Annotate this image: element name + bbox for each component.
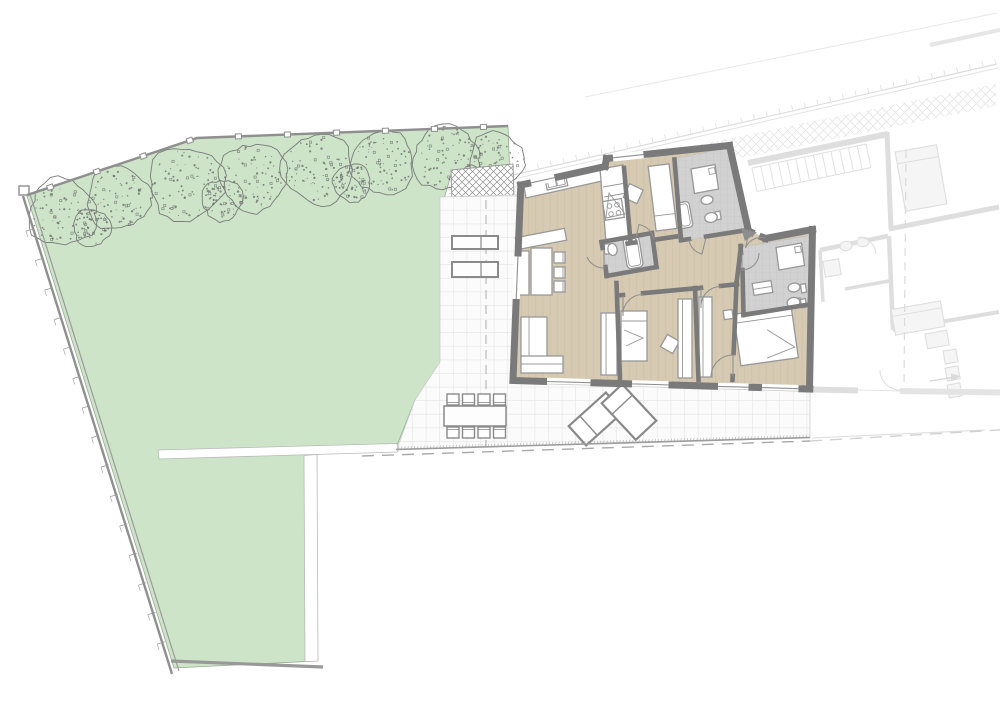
tree-speckle	[428, 169, 430, 171]
tree-speckle	[265, 173, 266, 174]
tree-speckle	[396, 141, 398, 143]
tree-speckle	[168, 173, 170, 175]
tree-speckle	[499, 154, 501, 156]
tree-speckle	[106, 221, 108, 223]
tree-speckle	[116, 178, 117, 179]
tree-speckle	[439, 180, 441, 182]
tree-speckle	[192, 191, 194, 193]
tree-speckle	[207, 190, 209, 192]
tree-speckle	[59, 209, 60, 210]
tree-speckle	[351, 188, 353, 190]
tree-speckle	[468, 138, 470, 140]
tree-speckle	[204, 206, 206, 208]
living-wardrobe	[601, 313, 617, 375]
tree-speckle	[100, 178, 101, 179]
tree-speckle	[392, 151, 394, 153]
planter-bench-2	[452, 262, 498, 277]
tree-speckle	[227, 166, 228, 167]
tree-speckle	[269, 161, 271, 163]
tree-speckle	[105, 229, 107, 231]
tree-speckle	[173, 180, 175, 182]
tree-speckle	[211, 210, 212, 211]
tree-speckle	[224, 176, 226, 178]
tree-speckle	[496, 149, 497, 150]
tree-speckle	[98, 204, 99, 205]
tree-speckle	[81, 213, 83, 215]
tree-speckle	[94, 194, 96, 196]
tree-speckle	[68, 216, 69, 217]
tree-speckle	[429, 148, 431, 150]
tree-speckle	[452, 145, 453, 146]
tree-speckle	[50, 209, 52, 211]
tree-speckle	[178, 215, 179, 216]
tree-speckle	[366, 164, 367, 165]
tree-speckle	[290, 151, 291, 152]
tree-speckle	[273, 165, 274, 166]
tree-speckle	[235, 205, 237, 207]
tree-speckle	[457, 160, 458, 161]
tree-speckle	[115, 193, 117, 195]
tree-speckle	[228, 167, 230, 169]
tree-speckle	[170, 168, 171, 169]
outdoor-chair	[478, 394, 490, 405]
fence-post	[431, 126, 437, 131]
tree-speckle	[221, 211, 223, 213]
tree-speckle	[468, 142, 470, 144]
tree-speckle	[263, 197, 265, 199]
tree-speckle	[81, 227, 83, 229]
tree-speckle	[263, 184, 265, 186]
tree-speckle	[320, 139, 322, 141]
tree-speckle	[176, 179, 178, 181]
outdoor-chair	[494, 394, 506, 405]
tree-speckle	[494, 162, 496, 164]
tree-speckle	[395, 160, 396, 161]
tree-speckle	[93, 232, 94, 233]
tree-speckle	[83, 217, 85, 219]
tree-speckle	[210, 197, 212, 199]
tree-speckle	[479, 152, 481, 154]
tree-speckle	[365, 156, 367, 158]
tree-speckle	[241, 162, 243, 164]
tree-speckle	[333, 167, 335, 169]
tree-speckle	[342, 177, 344, 179]
tree-speckle	[224, 211, 226, 213]
tree-speckle	[221, 204, 223, 206]
tree-speckle	[183, 152, 184, 153]
tree-speckle	[353, 196, 355, 198]
tree-speckle	[86, 213, 88, 215]
tree-speckle	[323, 162, 325, 164]
tree-speckle	[408, 151, 410, 153]
tree-speckle	[425, 171, 426, 172]
tree-speckle	[428, 135, 430, 137]
tree-speckle	[172, 176, 174, 178]
tree-speckle	[103, 199, 104, 200]
tree-speckle	[488, 140, 489, 141]
tree-speckle	[441, 150, 443, 152]
tree-speckle	[95, 243, 96, 244]
floor-plan-page	[0, 0, 1000, 707]
tree-speckle	[199, 210, 200, 211]
tree-speckle	[109, 190, 111, 192]
bed-single-1	[621, 311, 647, 361]
tree-speckle	[510, 152, 511, 153]
tree-speckle	[303, 169, 305, 171]
tree-speckle	[348, 171, 349, 172]
tree-speckle	[357, 172, 359, 174]
tree-speckle	[238, 187, 239, 188]
tree-speckle	[265, 156, 267, 158]
tree-speckle	[87, 227, 89, 229]
tree-speckle	[240, 195, 242, 197]
tree-speckle	[226, 203, 228, 205]
tree-speckle	[341, 172, 342, 173]
tree-speckle	[169, 195, 171, 197]
tree-speckle	[111, 216, 113, 218]
tree-speckle	[52, 220, 53, 221]
fence-post	[333, 130, 339, 135]
tree-speckle	[498, 152, 500, 154]
tree-speckle	[337, 177, 338, 178]
tree-speckle	[71, 203, 72, 204]
tree-speckle	[56, 238, 57, 239]
tree-speckle	[229, 195, 230, 196]
tree-speckle	[379, 171, 381, 173]
tree-speckle	[300, 142, 302, 144]
tree-speckle	[468, 158, 469, 159]
tree-speckle	[34, 225, 35, 226]
tree-speckle	[346, 189, 347, 190]
tree-speckle	[131, 175, 133, 177]
tree-speckle	[518, 152, 519, 153]
tree-speckle	[473, 151, 474, 152]
tree-speckle	[361, 168, 363, 170]
tree-speckle	[328, 187, 330, 189]
tree-speckle	[357, 166, 359, 168]
dining-table-indoor	[531, 248, 552, 295]
tree-speckle	[354, 185, 355, 186]
tree-speckle	[203, 183, 205, 185]
tree-speckle	[95, 212, 96, 213]
tree-speckle	[131, 187, 133, 189]
tree-speckle	[253, 196, 255, 198]
tree-speckle	[440, 172, 442, 174]
tree-speckle	[451, 133, 452, 134]
tree-speckle	[302, 180, 304, 182]
tree-speckle	[64, 197, 65, 198]
tree-speckle	[323, 175, 324, 176]
tree-speckle	[238, 159, 239, 160]
tree-speckle	[404, 177, 406, 179]
tree-speckle	[78, 237, 80, 239]
tree-speckle	[356, 186, 358, 188]
tree-speckle	[110, 210, 112, 212]
tree-speckle	[295, 180, 296, 181]
tree-speckle	[151, 183, 153, 185]
tree-speckle	[482, 144, 483, 145]
tree-speckle	[372, 181, 374, 183]
tree-speckle	[122, 204, 124, 206]
tree-speckle	[336, 158, 338, 160]
tree-speckle	[423, 176, 425, 178]
tree-speckle	[191, 150, 192, 151]
tree-speckle	[58, 227, 59, 228]
outdoor-chair	[447, 427, 459, 438]
tree-speckle	[101, 176, 103, 178]
tree-speckle	[230, 203, 231, 204]
tree-speckle	[103, 205, 105, 207]
tree-speckle	[368, 152, 369, 153]
tree-speckle	[363, 185, 364, 186]
tree-speckle	[107, 204, 109, 206]
tree-speckle	[181, 194, 183, 196]
tree-speckle	[261, 205, 262, 206]
tree-speckle	[368, 149, 369, 150]
tree-speckle	[383, 170, 385, 172]
tree-speckle	[386, 172, 388, 174]
tree-speckle	[271, 175, 273, 177]
tree-speckle	[368, 182, 369, 183]
tree-speckle	[256, 172, 258, 174]
tree-speckle	[122, 210, 124, 212]
tree-speckle	[500, 145, 501, 146]
tree-speckle	[87, 232, 89, 234]
tree-speckle	[493, 163, 494, 164]
tree-speckle	[130, 203, 131, 204]
tree-speckle	[181, 155, 183, 157]
tree-speckle	[178, 191, 180, 193]
tree-speckle	[42, 207, 44, 209]
tree-speckle	[338, 180, 340, 182]
tree-speckle	[493, 143, 494, 144]
tree-speckle	[57, 222, 59, 224]
tree-speckle	[165, 170, 167, 172]
tree-speckle	[159, 163, 160, 164]
tree-speckle	[442, 162, 444, 164]
tree-speckle	[271, 156, 272, 157]
tree-speckle	[426, 158, 428, 160]
tree-speckle	[346, 174, 348, 176]
tree-speckle	[383, 138, 385, 140]
tree-speckle	[345, 158, 347, 160]
fence-post	[235, 134, 241, 139]
tree-speckle	[227, 212, 229, 214]
tree-speckle	[459, 139, 461, 141]
tree-speckle	[342, 183, 343, 184]
tree-speckle	[126, 182, 128, 184]
tree-speckle	[78, 209, 79, 210]
tree-speckle	[107, 171, 109, 173]
tree-speckle	[206, 188, 208, 190]
tree-speckle	[474, 161, 475, 162]
tree-speckle	[106, 219, 107, 220]
tree-speckle	[389, 169, 390, 170]
tree-speckle	[162, 198, 164, 200]
tree-speckle	[184, 197, 186, 199]
tree-speckle	[484, 151, 486, 153]
tree-speckle	[100, 233, 102, 235]
tree-speckle	[221, 216, 223, 218]
tree-speckle	[348, 176, 349, 177]
tree-speckle	[470, 150, 472, 152]
tree-speckle	[471, 152, 472, 153]
tree-speckle	[258, 198, 259, 199]
tree-speckle	[383, 163, 384, 164]
fence-post	[284, 132, 290, 137]
tree-speckle	[280, 182, 282, 184]
tree-speckle	[256, 201, 258, 203]
tree-speckle	[295, 169, 296, 170]
dining-chairs-indoor	[554, 252, 565, 292]
tree-speckle	[365, 189, 366, 190]
tree-speckle	[257, 196, 259, 198]
tree-speckle	[122, 216, 123, 217]
tree-speckle	[405, 179, 407, 181]
tree-speckle	[104, 217, 105, 218]
tree-speckle	[291, 176, 293, 178]
tree-speckle	[229, 200, 230, 201]
tree-speckle	[433, 167, 435, 169]
tree-speckle	[362, 187, 364, 189]
tree-speckle	[212, 171, 214, 173]
tree-speckle	[256, 168, 257, 169]
tree-speckle	[129, 221, 131, 223]
tree-speckle	[59, 204, 60, 205]
tree-speckle	[316, 143, 318, 145]
tree-speckle	[371, 147, 372, 148]
tree-speckle	[182, 190, 184, 192]
tree-speckle	[205, 194, 206, 195]
tree-speckle	[454, 160, 455, 161]
tree-speckle	[212, 203, 214, 205]
tree-speckle	[245, 189, 246, 190]
tree-speckle	[455, 162, 457, 164]
tree-speckle	[424, 166, 426, 168]
tree-speckle	[104, 219, 105, 220]
tree-speckle	[117, 171, 119, 173]
tree-speckle	[255, 159, 256, 160]
tree-speckle	[42, 219, 43, 220]
outdoor-chair	[478, 427, 490, 438]
tree-speckle	[43, 192, 45, 194]
tree-speckle	[261, 203, 263, 205]
tree-speckle	[360, 166, 362, 168]
tree-speckle	[392, 189, 394, 191]
tree-speckle	[364, 180, 365, 181]
tree-speckle	[345, 183, 346, 184]
tree-speckle	[233, 214, 234, 215]
tree-speckle	[77, 210, 78, 211]
tree-speckle	[208, 173, 209, 174]
tree-speckle	[380, 166, 382, 168]
tree-speckle	[37, 199, 38, 200]
tree-speckle	[127, 195, 129, 197]
tree-speckle	[304, 180, 305, 181]
tree-speckle	[253, 159, 254, 160]
tree-speckle	[275, 177, 277, 179]
tree-speckle	[188, 156, 190, 158]
tree-speckle	[397, 148, 399, 150]
tree-speckle	[401, 179, 403, 181]
outdoor-dining-table	[444, 406, 506, 426]
tree-speckle	[496, 161, 498, 163]
tree-speckle	[313, 177, 315, 179]
tree-speckle	[89, 237, 91, 239]
tree-speckle	[122, 217, 124, 219]
tree-speckle	[443, 143, 445, 145]
tree-speckle	[90, 219, 92, 221]
tree-speckle	[89, 233, 91, 235]
tree-speckle	[333, 180, 335, 182]
tree-speckle	[195, 167, 197, 169]
tree-speckle	[356, 196, 358, 198]
tree-speckle	[453, 133, 455, 135]
tree-speckle	[421, 152, 422, 153]
tree-speckle	[485, 136, 487, 138]
tree-speckle	[269, 198, 271, 200]
tree-speckle	[481, 139, 483, 141]
tree-speckle	[120, 183, 121, 184]
tree-speckle	[373, 142, 375, 144]
tree-speckle	[271, 187, 273, 189]
tree-speckle	[180, 185, 182, 187]
tree-speckle	[253, 157, 255, 159]
tree-speckle	[340, 174, 342, 176]
tree-speckle	[286, 173, 287, 174]
tree-speckle	[427, 146, 428, 147]
tree-speckle	[40, 207, 42, 209]
outdoor-chair	[494, 427, 506, 438]
tree-speckle	[317, 191, 318, 192]
tree-speckle	[177, 151, 178, 152]
tree-speckle	[225, 170, 226, 171]
tree-speckle	[427, 140, 428, 141]
outdoor-chair	[463, 427, 475, 438]
garden-path-vertical	[304, 455, 318, 662]
tree-speckle	[443, 161, 445, 163]
tree-speckle	[436, 167, 438, 169]
tree-speckle	[207, 179, 209, 181]
nightstand-left	[723, 309, 733, 319]
site-plan-drawing	[0, 0, 1000, 707]
tree-speckle	[359, 146, 360, 147]
tree-speckle	[89, 219, 90, 220]
tree-speckle	[193, 164, 195, 166]
tree-speckle	[445, 157, 447, 159]
tree-speckle	[289, 167, 291, 169]
tree-speckle	[395, 170, 397, 172]
tree-speckle	[51, 236, 53, 238]
tree-speckle	[250, 163, 251, 164]
tree-speckle	[267, 192, 269, 194]
tree-speckle	[339, 187, 341, 189]
tree-speckle	[59, 221, 60, 222]
tree-speckle	[386, 148, 387, 149]
tree-speckle	[228, 189, 230, 191]
tree-speckle	[309, 150, 311, 152]
tree-speckle	[391, 177, 393, 179]
tree-speckle	[77, 231, 79, 233]
outdoor-chair	[447, 394, 459, 405]
tree-speckle	[215, 199, 217, 201]
tree-speckle	[59, 189, 60, 190]
tree-speckle	[193, 178, 195, 180]
tree-speckle	[478, 147, 480, 149]
outdoor-chair	[463, 394, 475, 405]
tree-speckle	[209, 169, 211, 171]
tree-speckle	[359, 177, 360, 178]
